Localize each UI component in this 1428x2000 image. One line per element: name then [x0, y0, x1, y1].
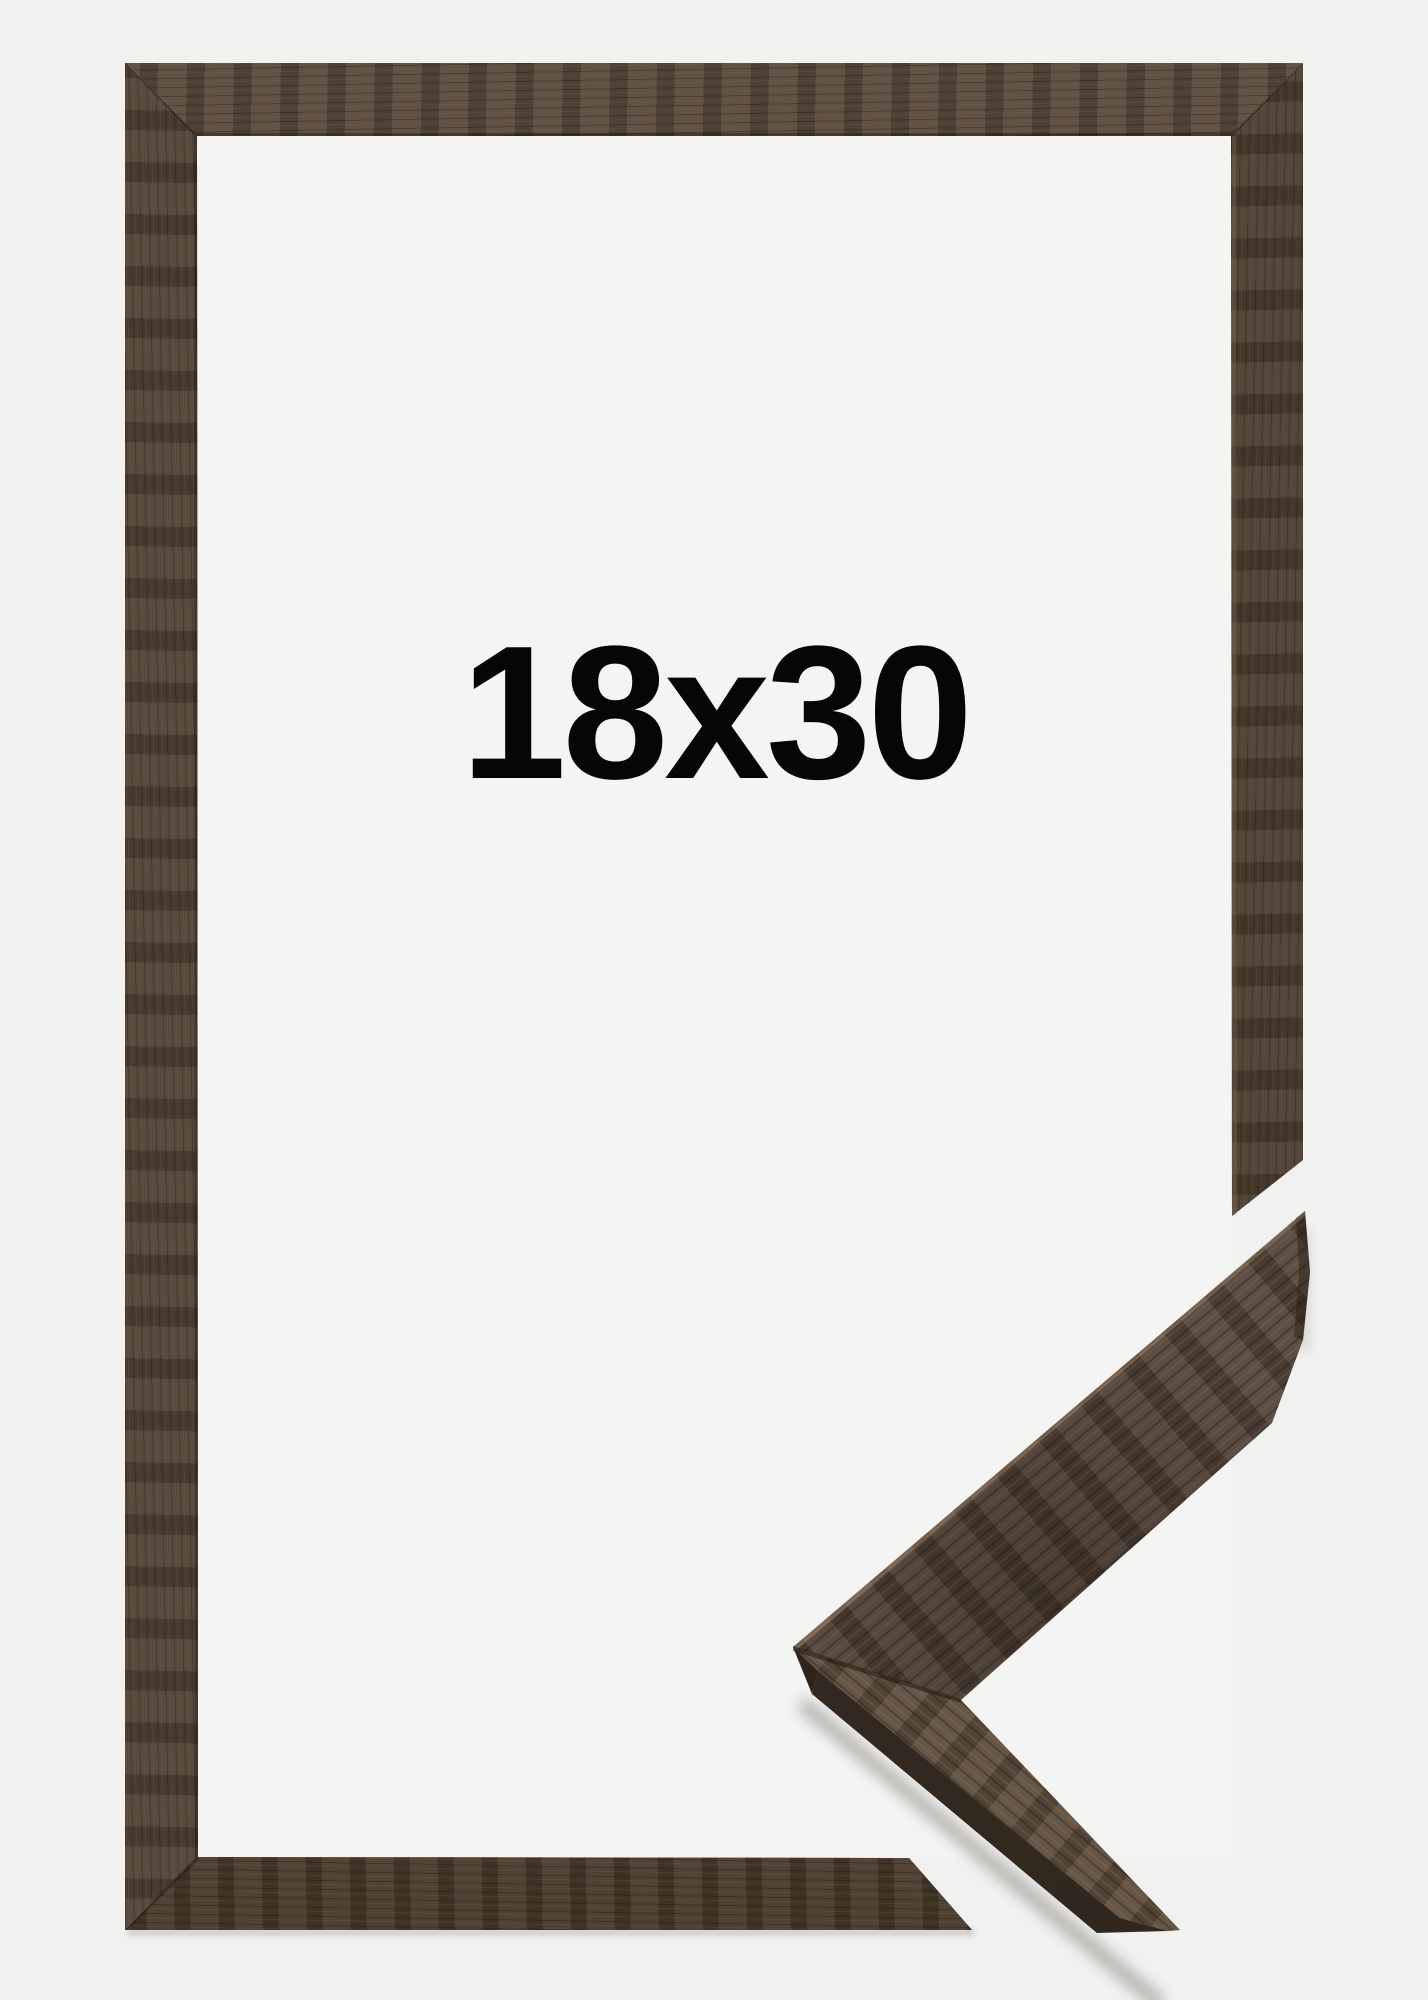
frame-window [198, 136, 1231, 1857]
product-frame-photo[interactable]: 18x30 [0, 0, 1428, 2000]
size-label: 18x30 [461, 618, 969, 808]
frame-drop-shadow [128, 1930, 974, 1935]
